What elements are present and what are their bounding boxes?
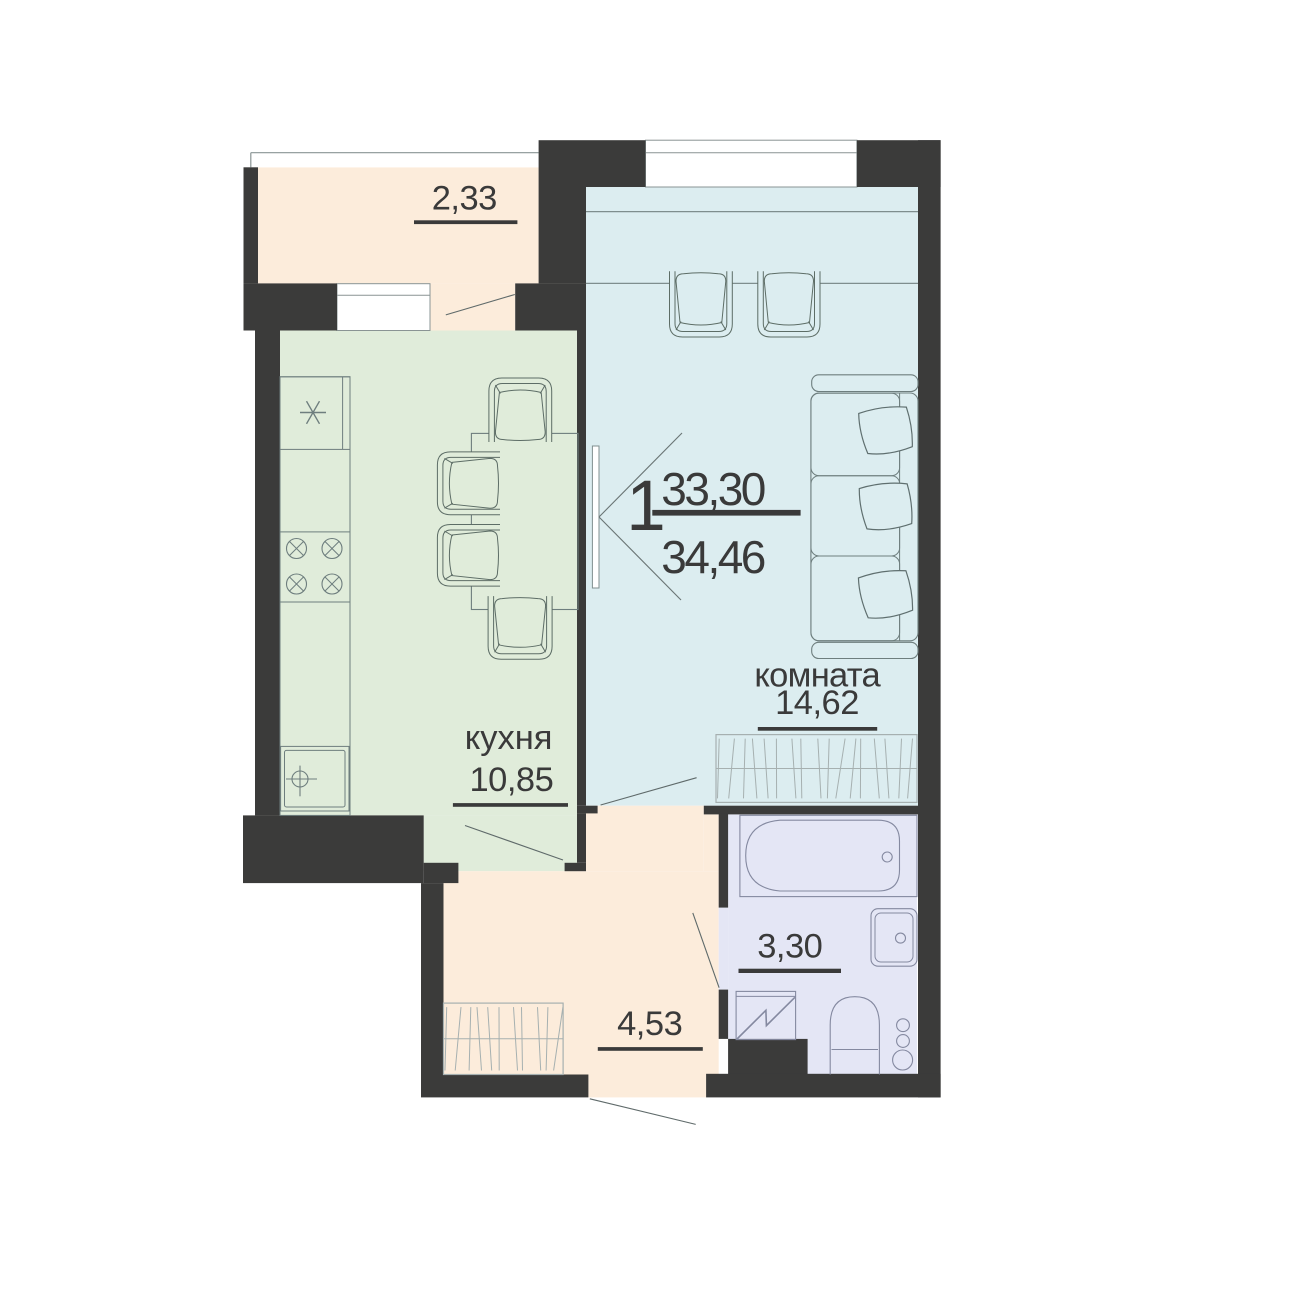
svg-text:14,62: 14,62 bbox=[775, 684, 859, 722]
svg-text:2,33: 2,33 bbox=[432, 180, 497, 218]
svg-text:кухня: кухня bbox=[465, 719, 553, 757]
svg-text:3,30: 3,30 bbox=[757, 927, 822, 965]
svg-text:1: 1 bbox=[626, 467, 666, 546]
svg-text:4,53: 4,53 bbox=[617, 1005, 682, 1043]
svg-text:34,46: 34,46 bbox=[661, 531, 765, 583]
svg-text:10,85: 10,85 bbox=[469, 761, 553, 799]
svg-text:33,30: 33,30 bbox=[661, 463, 765, 515]
